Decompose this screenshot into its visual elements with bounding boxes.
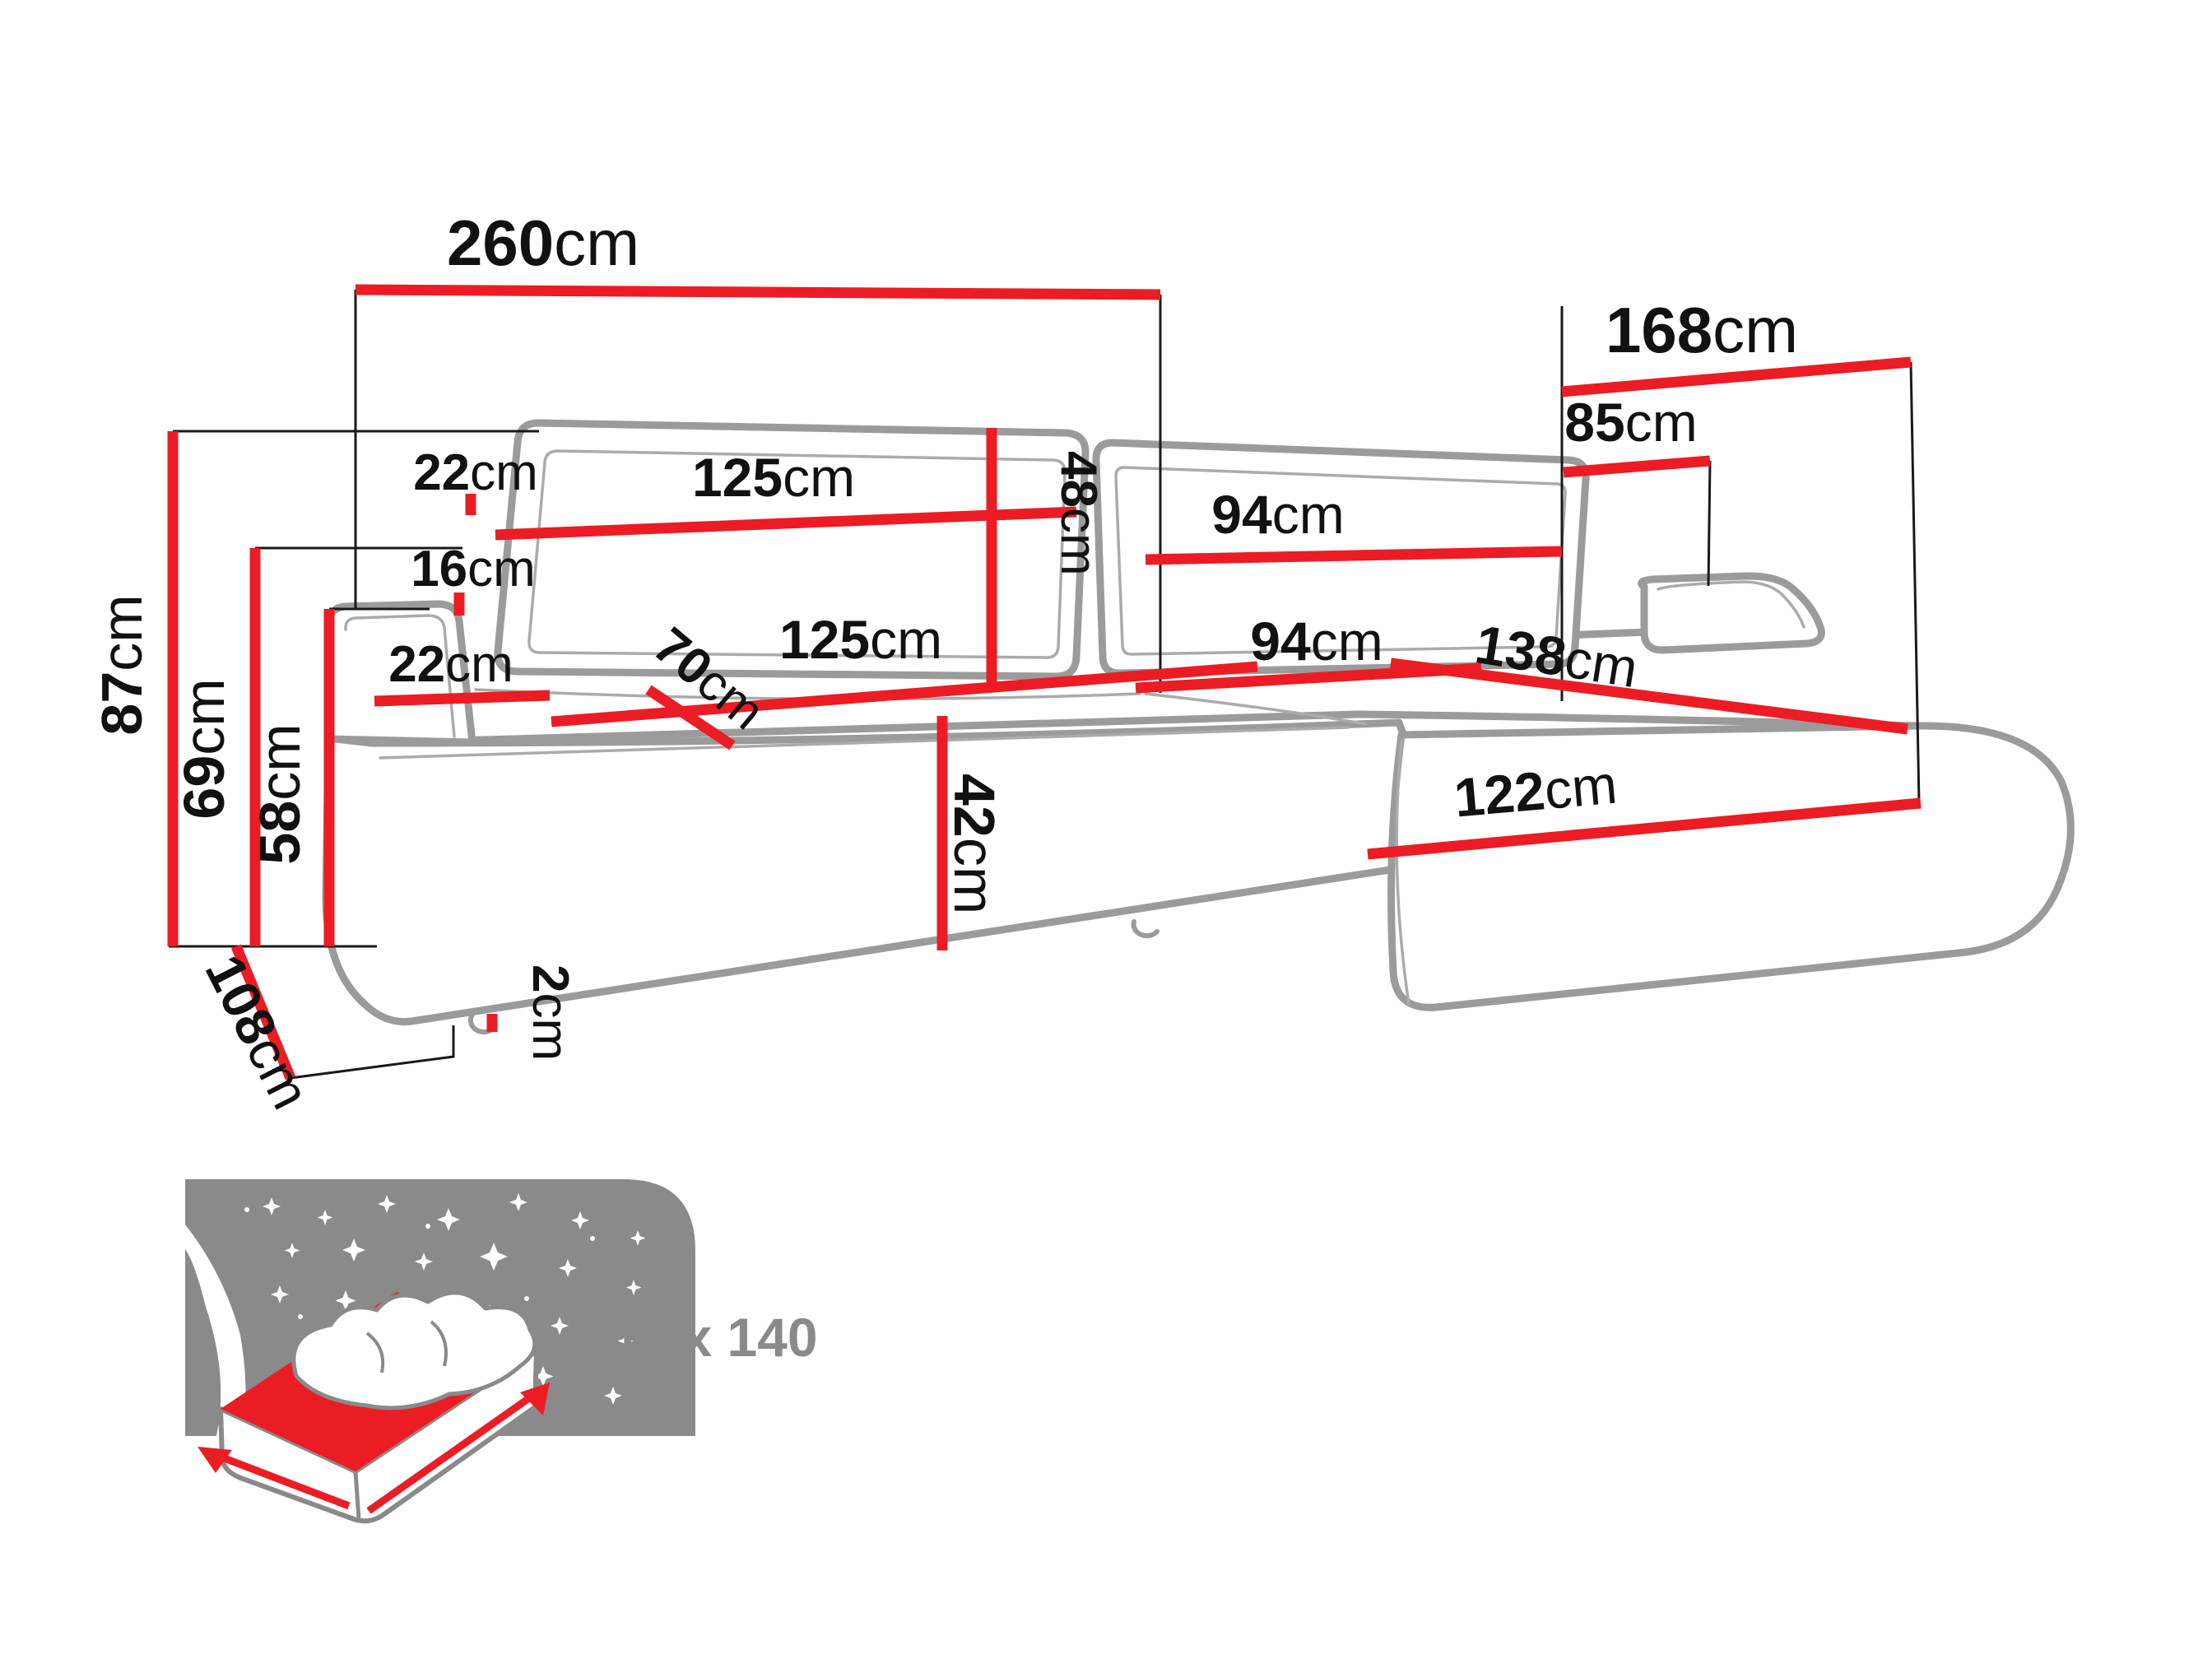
label-armrest-width: 22cm	[388, 636, 513, 693]
sleeping-area-label: 240 x 140	[576, 1307, 818, 1368]
sofa-drawing	[326, 423, 2070, 1032]
dim-line-right-section	[1564, 461, 1710, 472]
label-total-depth: 168cm	[1606, 294, 1798, 366]
label-total-width: 260cm	[447, 207, 639, 279]
diagram-stage: 260cm 168cm 85cm 87cm 69cm 58cm 22cm 16c…	[0, 0, 2212, 1659]
label-armrest-height: 58cm	[248, 723, 312, 864]
label-overall-height: 87cm	[90, 594, 154, 735]
sleeping-area-icon: 240 x 140	[185, 1179, 818, 1521]
sofa-base	[326, 723, 1448, 1022]
guide-base-depth-box	[290, 1025, 453, 1078]
dim-line-total-width	[355, 290, 1160, 295]
label-backrest-offset-bottom: 16cm	[411, 541, 536, 597]
label-seat-left-width: 125cm	[779, 609, 942, 670]
label-backrest-cushion-height: 48cm	[1050, 451, 1107, 576]
label-chaise-length: 138cm	[1471, 613, 1642, 699]
label-seat-height: 42cm	[942, 774, 1006, 914]
sofa-leg-middle	[1134, 922, 1157, 936]
label-backrest-right-width: 94cm	[1211, 484, 1344, 545]
label-backrest-left-width: 125cm	[692, 447, 855, 508]
label-leg-height: 2cm	[522, 964, 579, 1061]
label-backrest-offset-top: 22cm	[413, 444, 538, 501]
label-right-section: 85cm	[1564, 392, 1697, 453]
label-base-depth: 108cm	[194, 946, 323, 1118]
label-back-height: 69cm	[172, 678, 236, 819]
label-seat-right-width: 94cm	[1250, 611, 1382, 671]
sofa-dimension-diagram: 260cm 168cm 85cm 87cm 69cm 58cm 22cm 16c…	[0, 0, 2212, 1659]
guide-right-section	[1708, 461, 1710, 586]
dim-line-total-depth	[1562, 362, 1911, 392]
dim-line-armrest-width	[374, 695, 550, 701]
